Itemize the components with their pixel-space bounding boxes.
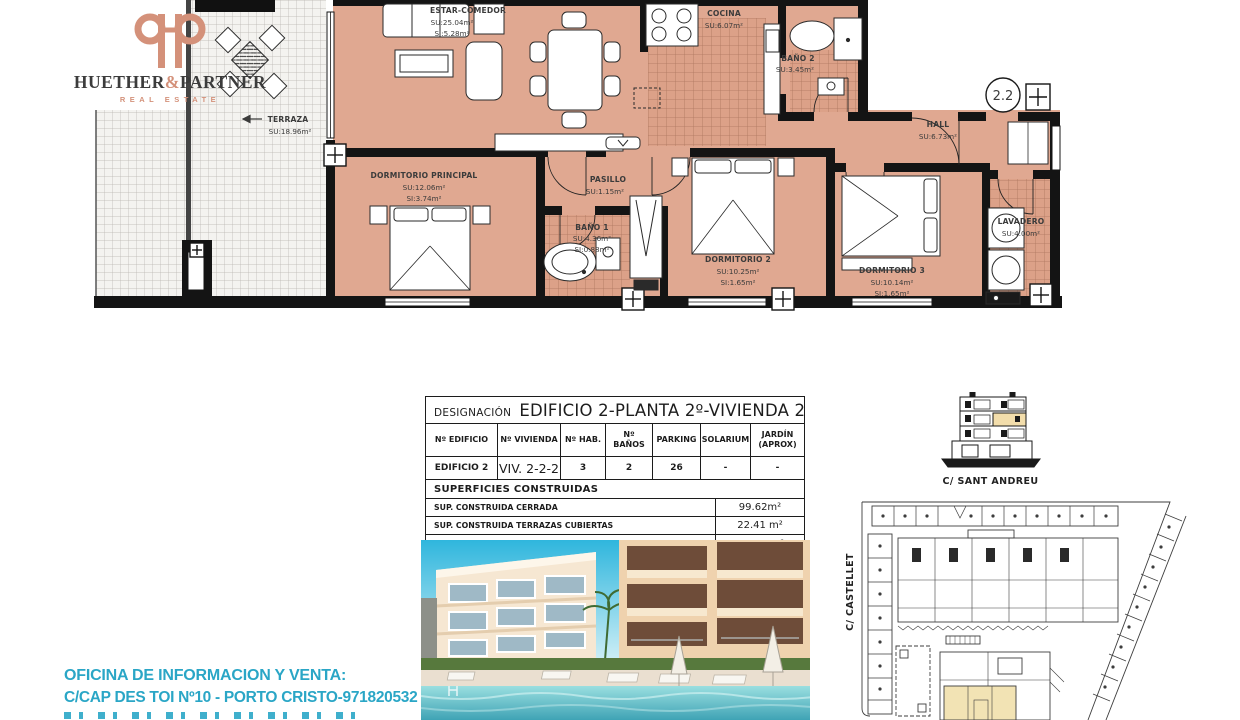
- svg-text:TERRAZA: TERRAZA: [268, 115, 309, 124]
- svg-text:SI:3.74m²: SI:3.74m²: [407, 194, 442, 203]
- surfaces-title: SUPERFICIES CONSTRUIDAS: [426, 480, 606, 498]
- col-header: Nº BAÑOS: [606, 424, 653, 456]
- designation-value: EDIFICIO 2-PLANTA 2º-VIVIENDA 2: [519, 401, 805, 420]
- cell-banos: 2: [606, 457, 653, 479]
- svg-text:PASILLO: PASILLO: [590, 175, 627, 184]
- svg-text:SU:25.04m²: SU:25.04m²: [431, 18, 474, 27]
- unit-badge: 2.2: [986, 78, 1020, 112]
- company-name: HUETHER&PARTNER: [70, 72, 270, 93]
- photo-pool: [421, 686, 810, 720]
- office-info-line2: C/CAP DES TOI Nº10 - PORTO CRISTO-971820…: [64, 689, 417, 707]
- apartment-photo: [421, 540, 810, 720]
- photo-stone-wall: [421, 598, 437, 664]
- svg-text:SU:12.06m²: SU:12.06m²: [403, 183, 446, 192]
- unit-spec-table: DESIGNACIÓN EDIFICIO 2-PLANTA 2º-VIVIEND…: [425, 396, 805, 555]
- col-header: SOLARIUM: [701, 424, 751, 456]
- designation-label: DESIGNACIÓN: [434, 407, 511, 419]
- cell-solarium: -: [701, 457, 751, 479]
- building-elevation: [938, 392, 1042, 476]
- col-header: Nº EDIFICIO: [426, 424, 498, 456]
- svg-text:COCINA: COCINA: [707, 9, 741, 18]
- cell-edificio: EDIFICIO 2: [426, 457, 498, 479]
- street-label-castellet: C/ CASTELLET: [845, 532, 859, 652]
- site-plan: [838, 490, 1240, 720]
- svg-text:SU:18.96m²: SU:18.96m²: [269, 127, 312, 136]
- surface-row: SUP. CONSTRUIDA CERRADA 99.62m²: [426, 498, 804, 516]
- col-header: Nº HAB.: [561, 424, 606, 456]
- svg-text:SU:4.00m²: SU:4.00m²: [1002, 229, 1040, 238]
- col-header: Nº VIVIENDA: [498, 424, 561, 456]
- svg-text:BAÑO 2: BAÑO 2: [781, 54, 815, 63]
- svg-text:SI:5.28m²: SI:5.28m²: [435, 29, 470, 38]
- col-header: JARDÍN (APROX): [751, 424, 804, 456]
- svg-text:SI:0.88m²: SI:0.88m²: [575, 245, 610, 254]
- svg-text:SU:1.15m²: SU:1.15m²: [586, 187, 624, 196]
- svg-text:DORMITORIO PRINCIPAL: DORMITORIO PRINCIPAL: [371, 171, 478, 180]
- cutoff-text-fragment: [64, 712, 360, 719]
- cell-hab: 3: [561, 457, 606, 479]
- svg-text:SI:1.65m²: SI:1.65m²: [721, 278, 756, 287]
- svg-text:2.2: 2.2: [993, 89, 1014, 104]
- cell-vivienda: VIV. 2-2-2: [498, 457, 561, 479]
- designation-row: DESIGNACIÓN EDIFICIO 2-PLANTA 2º-VIVIEND…: [426, 397, 804, 423]
- cell-parking: 26: [653, 457, 701, 479]
- spec-value-row: EDIFICIO 2 VIV. 2-2-2 3 2 26 - -: [426, 456, 804, 479]
- company-logo: HUETHER&PARTNER REAL ESTATE: [70, 10, 270, 104]
- svg-text:SI:1.65m²: SI:1.65m²: [875, 289, 910, 298]
- svg-text:HALL: HALL: [927, 120, 950, 129]
- logo-monogram-icon: [127, 10, 213, 72]
- surface-label: SUP. CONSTRUIDA TERRAZAS CUBIERTAS: [426, 517, 716, 534]
- svg-text:SU:10.25m²: SU:10.25m²: [717, 267, 760, 276]
- svg-text:SU:4.36m²: SU:4.36m²: [573, 234, 611, 243]
- svg-text:DORMITORIO 3: DORMITORIO 3: [859, 266, 925, 275]
- svg-text:SU:3.45m²: SU:3.45m²: [776, 65, 814, 74]
- spec-header-row: Nº EDIFICIO Nº VIVIENDA Nº HAB. Nº BAÑOS…: [426, 423, 804, 456]
- surface-row: SUP. CONSTRUIDA TERRAZAS CUBIERTAS 22.41…: [426, 516, 804, 534]
- hall-closet: [1008, 122, 1048, 164]
- svg-text:SU:6.07m²: SU:6.07m²: [705, 21, 743, 30]
- surface-value: 22.41 m²: [716, 517, 804, 534]
- office-info: OFICINA DE INFORMACION Y VENTA: C/CAP DE…: [64, 667, 417, 719]
- col-header: PARKING: [653, 424, 701, 456]
- street-label-sant-andreu: C/ SANT ANDREU: [928, 476, 1053, 487]
- photo-hedge: [421, 658, 810, 671]
- svg-text:SU:10.14m²: SU:10.14m²: [871, 278, 914, 287]
- svg-text:DORMITORIO 2: DORMITORIO 2: [705, 255, 771, 264]
- svg-text:SU:6.73m²: SU:6.73m²: [919, 132, 957, 141]
- svg-text:BAÑO 1: BAÑO 1: [575, 223, 609, 232]
- surface-label: SUP. CONSTRUIDA CERRADA: [426, 499, 716, 516]
- photo-left-building: [436, 552, 596, 662]
- svg-text:LAVADERO: LAVADERO: [998, 217, 1045, 226]
- bedroom3-furniture: [842, 176, 940, 270]
- photo-right-building: [619, 540, 810, 668]
- surface-value: 99.62m²: [716, 499, 804, 516]
- svg-text:ESTAR-COMEDOR: ESTAR-COMEDOR: [430, 6, 506, 15]
- cell-jardin: -: [751, 457, 804, 479]
- company-tagline: REAL ESTATE: [70, 95, 270, 104]
- office-info-line1: OFICINA DE INFORMACION Y VENTA:: [64, 667, 417, 685]
